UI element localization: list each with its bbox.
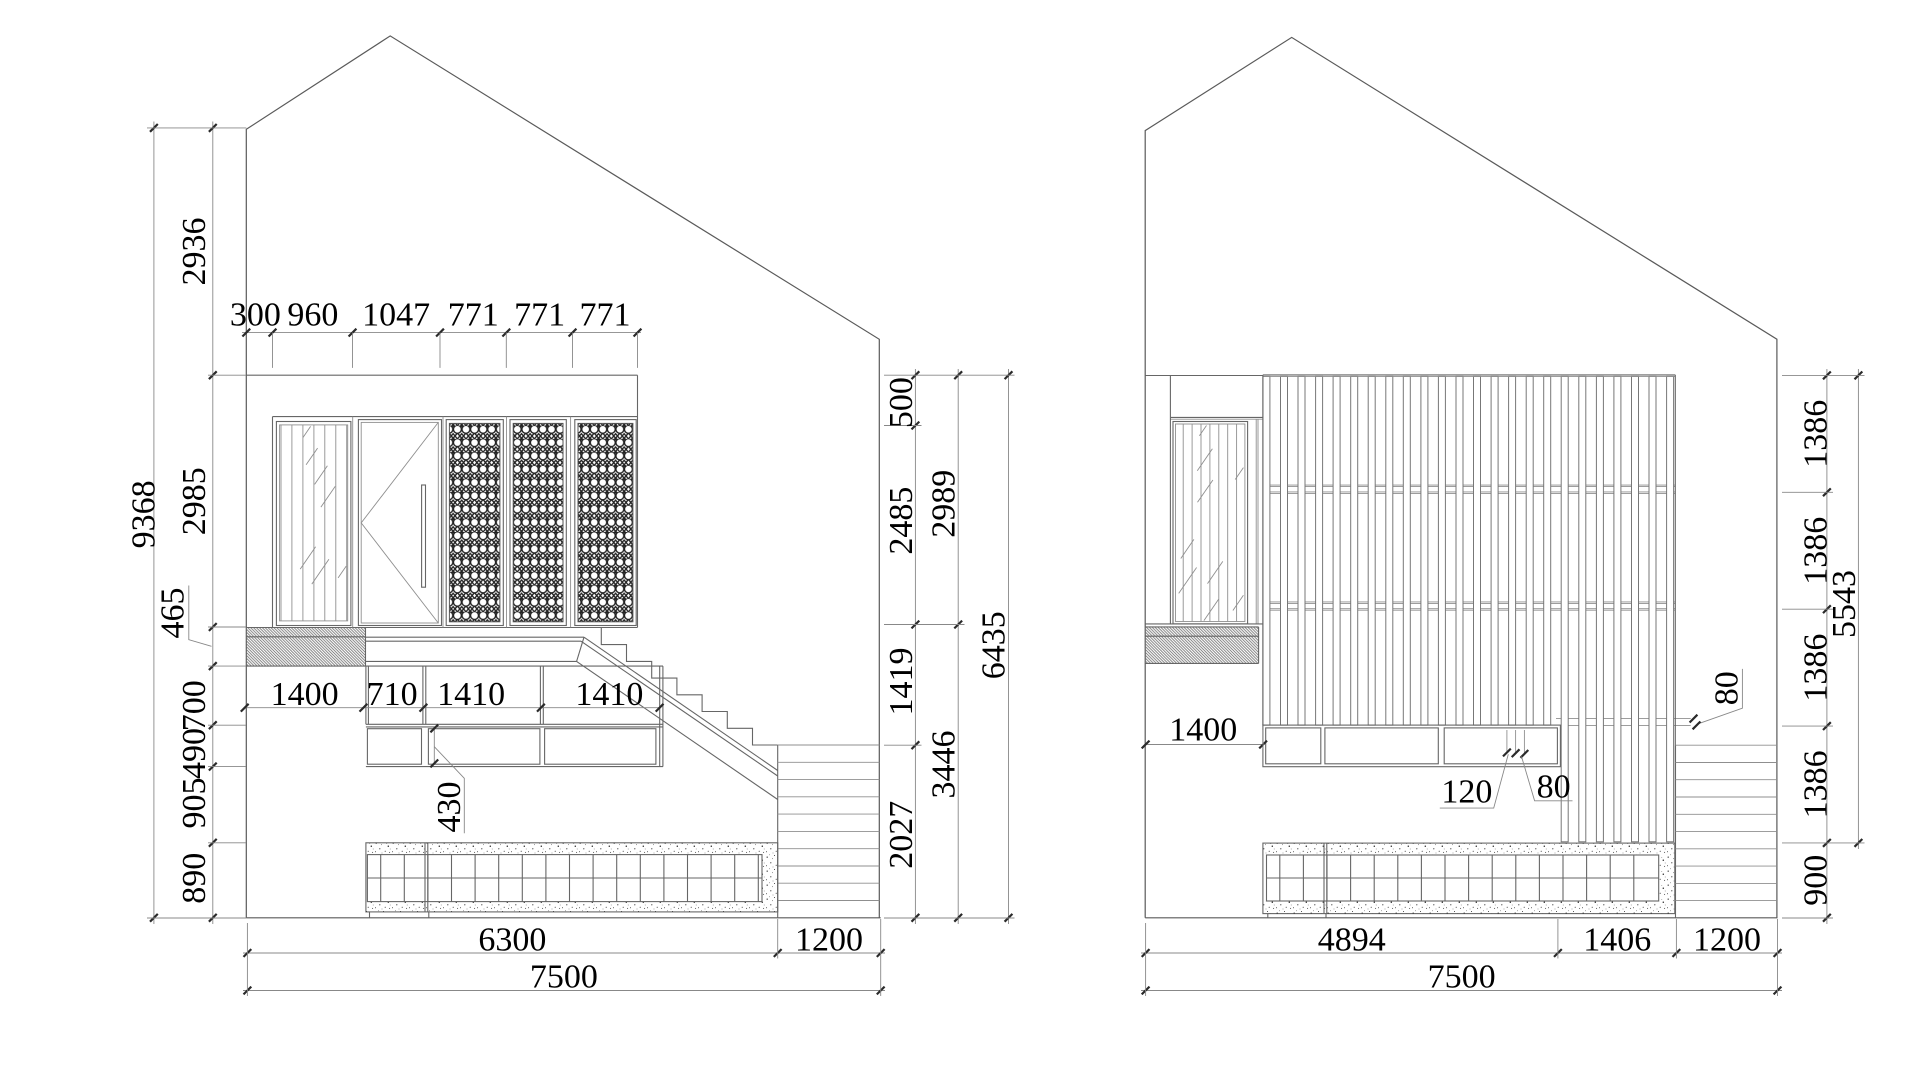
svg-text:1200: 1200 [1693,922,1761,959]
svg-text:1406: 1406 [1583,922,1651,959]
svg-text:300: 300 [230,297,281,334]
svg-text:4894: 4894 [1318,922,1386,959]
svg-text:500: 500 [883,377,920,428]
svg-text:1047: 1047 [362,297,430,334]
svg-text:2985: 2985 [176,467,213,535]
svg-text:1410: 1410 [437,676,505,713]
svg-text:771: 771 [580,297,631,334]
svg-text:710: 710 [367,676,418,713]
svg-text:6435: 6435 [975,611,1012,679]
svg-text:1400: 1400 [271,676,339,713]
svg-text:1386: 1386 [1798,634,1835,702]
svg-text:905: 905 [176,778,213,829]
svg-text:7500: 7500 [1428,959,1496,996]
svg-text:465: 465 [155,588,192,639]
svg-text:1386: 1386 [1798,750,1835,818]
svg-text:700: 700 [176,680,213,731]
svg-text:7500: 7500 [530,959,598,996]
svg-text:1410: 1410 [575,676,643,713]
svg-text:120: 120 [1441,774,1492,811]
svg-text:2936: 2936 [176,218,213,286]
svg-text:771: 771 [448,297,499,334]
svg-text:9368: 9368 [126,480,163,548]
svg-text:900: 900 [1798,855,1835,906]
svg-text:1200: 1200 [795,922,863,959]
svg-text:1386: 1386 [1798,400,1835,468]
svg-text:80: 80 [1709,671,1746,705]
svg-text:490: 490 [176,728,213,779]
svg-text:2989: 2989 [926,470,963,538]
svg-text:6300: 6300 [478,922,546,959]
svg-text:2485: 2485 [883,487,920,555]
svg-text:890: 890 [176,853,213,904]
svg-text:771: 771 [514,297,565,334]
svg-text:1419: 1419 [883,648,920,716]
svg-text:960: 960 [287,297,338,334]
svg-text:430: 430 [431,782,468,833]
svg-text:2027: 2027 [883,801,920,869]
svg-text:5543: 5543 [1826,570,1863,638]
svg-text:3446: 3446 [926,731,963,799]
svg-text:1400: 1400 [1169,712,1237,749]
svg-text:80: 80 [1537,769,1571,806]
